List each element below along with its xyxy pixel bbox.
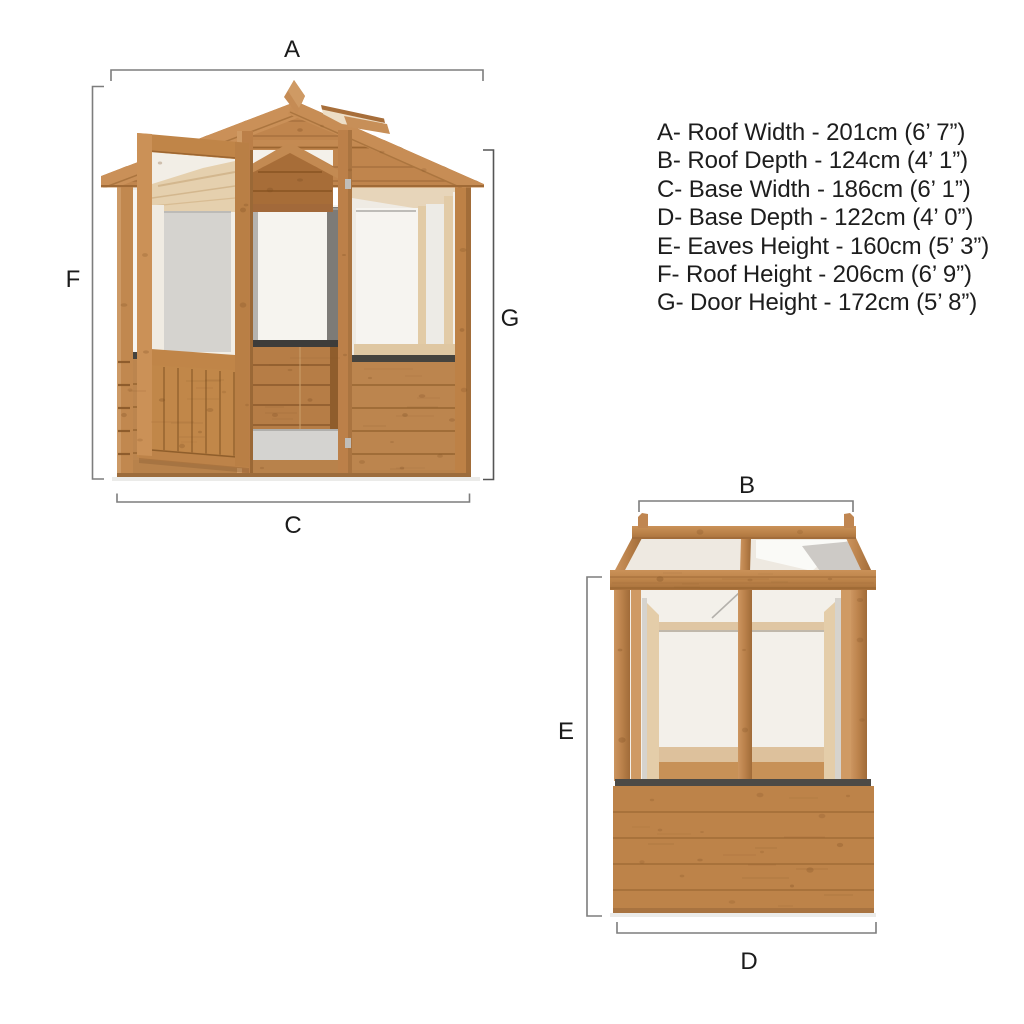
svg-text:D: D (740, 948, 757, 975)
svg-text:G: G (501, 305, 520, 332)
svg-text:C: C (284, 512, 301, 539)
svg-text:A: A (284, 36, 300, 63)
svg-text:B: B (739, 472, 755, 499)
svg-text:E: E (558, 718, 574, 745)
svg-text:F: F (66, 266, 81, 293)
